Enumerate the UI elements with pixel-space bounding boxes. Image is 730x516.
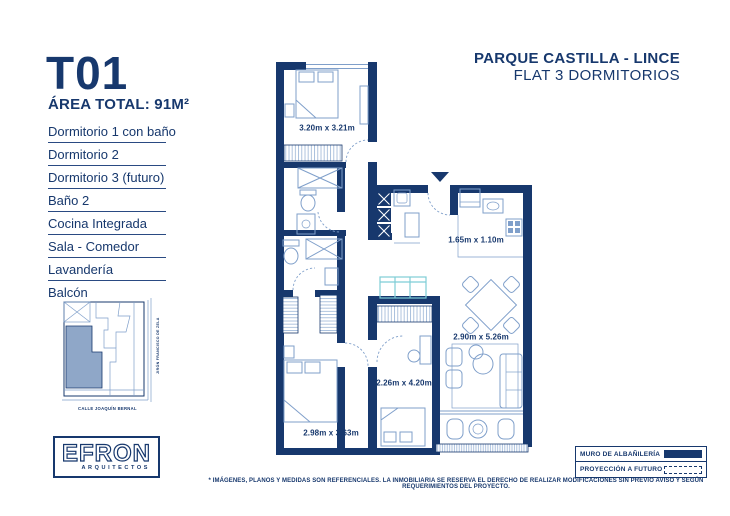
- room-list-item: Dormitorio 3 (futuro): [48, 166, 166, 189]
- site-location-map: JIRÓN FRANCISCO DE ZELA CALLE JOAQUÍN BE…: [56, 296, 164, 423]
- logo-name: EFRON: [62, 443, 151, 465]
- room-list: Dormitorio 1 con baño Dormitorio 2 Dormi…: [48, 120, 166, 303]
- legend-label: MURO DE ALBAÑILERÍA: [580, 451, 664, 458]
- room-list-item: Cocina Integrada: [48, 212, 166, 235]
- dim-label-sala: 2.90m x 5.26m: [453, 333, 509, 342]
- legend-swatch-dashed: [664, 466, 702, 474]
- plan-legend: MURO DE ALBAÑILERÍA PROYECCIÓN A FUTURO: [575, 446, 707, 478]
- total-area-label: ÁREA TOTAL: 91M²: [48, 96, 189, 113]
- highlighted-unit: [66, 326, 102, 388]
- balcony-furniture: [440, 411, 523, 439]
- legend-row-future: PROYECCIÓN A FUTURO: [576, 462, 706, 477]
- living-room-furniture: [446, 344, 522, 408]
- unit-code: T01: [46, 46, 128, 100]
- dim-label-dorm3: 2.26m x 4.20m: [376, 379, 432, 388]
- bedroom3-furniture: [381, 336, 431, 446]
- room-list-item: Baño 2: [48, 189, 166, 212]
- duct-boxes: [377, 192, 391, 238]
- dim-label-dorm2: 2.98m x 3.63m: [303, 429, 359, 438]
- dim-label-dorm1: 3.20m x 3.21m: [299, 124, 355, 133]
- street-label-right: JIRÓN FRANCISCO DE ZELA: [155, 317, 160, 374]
- legend-swatch-solid: [664, 450, 702, 458]
- logo-tagline: ARQUITECTOS: [81, 465, 150, 471]
- legend-row-masonry: MURO DE ALBAÑILERÍA: [576, 447, 706, 462]
- floor-plan: 3.20m x 3.21m 1.65m x 1.10m 2.90m x 5.26…: [265, 52, 540, 460]
- kitchenette-counter: [394, 190, 420, 243]
- bathroom2-fixtures: [283, 239, 342, 285]
- room-list-item: Dormitorio 2: [48, 143, 166, 166]
- dim-label-kitchen: 1.65m x 1.10m: [448, 236, 504, 245]
- balcony-railing: [436, 444, 528, 452]
- room-list-item: Dormitorio 1 con baño: [48, 120, 166, 143]
- bedroom2-furniture: [284, 346, 337, 422]
- dining-set: [461, 275, 520, 334]
- laundry-machines: [380, 277, 426, 298]
- efron-logo: EFRON ARQUITECTOS: [53, 436, 160, 478]
- room-list-item: Sala - Comedor: [48, 235, 166, 258]
- room-list-item: Lavandería: [48, 258, 166, 281]
- bedroom1-furniture: [285, 70, 368, 124]
- bathroom1-fixtures: [297, 168, 342, 234]
- legend-label: PROYECCIÓN A FUTURO: [580, 466, 664, 473]
- disclaimer-text: * IMÁGENES, PLANOS Y MEDIDAS SON REFEREN…: [195, 478, 717, 490]
- window-dorm1: [306, 65, 368, 69]
- kitchen-appliances: [458, 189, 523, 257]
- street-label-bottom: CALLE JOAQUÍN BERNAL: [78, 406, 137, 411]
